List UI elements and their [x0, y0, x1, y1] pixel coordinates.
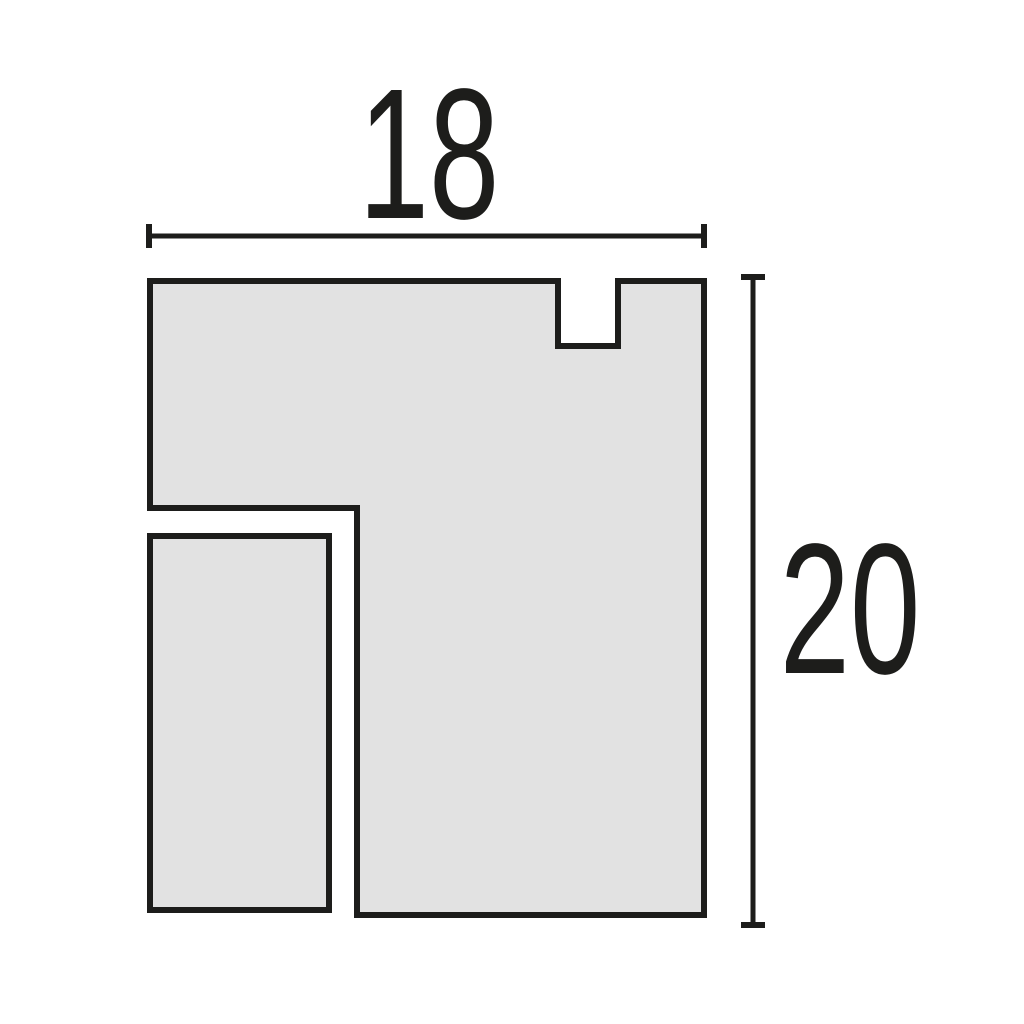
- height-dimension: 20: [741, 277, 920, 925]
- width-dimension-label: 18: [359, 50, 500, 258]
- moulding-profile-base-strip: [150, 536, 329, 910]
- diagram-canvas: 18 20: [0, 0, 1024, 1024]
- width-dimension: 18: [149, 50, 704, 258]
- cross-section-drawing: 18 20: [0, 0, 1024, 1024]
- height-dimension-label: 20: [780, 505, 921, 713]
